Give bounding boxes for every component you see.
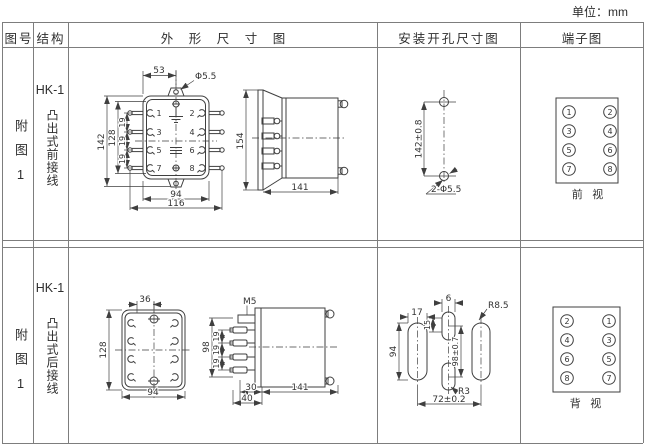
row1-model: HK-1 [32, 83, 68, 97]
table-border-top [2, 22, 643, 23]
holes-label: 2-Φ5.5 [431, 185, 461, 195]
row1-view-caption: 前 视 [572, 187, 607, 201]
td1-terminal-1: 1 [566, 108, 571, 117]
relay-side-body [258, 90, 348, 190]
row2-wiring: 凸出式后接线 [44, 317, 61, 395]
row1-mounting-drawing: 142±0.8 2-Φ5.5 [400, 85, 490, 205]
dim-128-r2: 128 [99, 341, 109, 358]
row2-mounting-drawing: 6 17 R8.5 15 94 98±0.7 R3 72±0.2 [385, 293, 515, 415]
row2-outline-side-view: M5 98 19 19 19 30 141 40 [205, 290, 340, 415]
td1-terminal-6: 6 [607, 146, 612, 155]
dim-154: 154 [236, 132, 246, 149]
terminal-no-8: 8 [189, 164, 194, 173]
relay2-side-body [230, 308, 334, 387]
header-terminal: 端子图 [562, 28, 603, 47]
dim-116: 116 [167, 199, 184, 209]
dim-128: 128 [108, 129, 118, 146]
table-col-line-2 [68, 22, 69, 443]
row2-side-dimensions: M5 98 19 19 19 30 141 40 [202, 297, 338, 405]
td1-terminal-5: 5 [566, 146, 571, 155]
dim-19b-r2: 19 [212, 345, 221, 355]
dim-6: 6 [446, 294, 452, 304]
row2-view-caption: 背 视 [570, 396, 605, 410]
dim-36: 36 [139, 295, 151, 305]
dim-98: 98 [202, 341, 212, 353]
row2-mounting-slots [408, 312, 490, 390]
table-border-left [2, 22, 3, 443]
td2-terminal-6: 6 [564, 355, 569, 364]
td2-terminal-7: 7 [606, 374, 611, 383]
header-outline: 外 形 尺 寸 图 [161, 28, 291, 47]
row1-terminal-diagram: 1 2 3 4 5 6 7 8 前 视 [545, 92, 635, 204]
td2-terminal-8: 8 [564, 374, 569, 383]
dim-94-mnt: 94 [389, 346, 399, 358]
row1-figure-no: 附图1 [11, 119, 30, 193]
dim-142-tol: 142±0.8 [415, 119, 425, 158]
dim-19a: 19 [118, 117, 127, 127]
dim-141: 141 [291, 183, 308, 193]
unit-label: 单位：mm [572, 3, 628, 20]
row1-front-dimensions: 53 Φ5.5 142 128 19 19 19 94 116 1 2 3 4 … [97, 66, 222, 210]
screw-m5-label: M5 [243, 297, 257, 307]
header-mounting: 安装开孔尺寸图 [398, 28, 500, 47]
dim-19b: 19 [118, 136, 127, 146]
dim-19c-r2: 19 [212, 358, 221, 368]
row2-figure-no: 附图1 [11, 328, 30, 402]
dim-30: 30 [245, 383, 257, 393]
terminal-no-5: 5 [156, 146, 161, 155]
datasheet-page: 单位：mm 图号 结构 外 形 尺 寸 图 安装开孔尺寸图 端子图 附图1 HK… [0, 0, 645, 447]
header-structure: 结构 [36, 28, 65, 47]
dim-40: 40 [241, 394, 253, 404]
row2-terminal-diagram: 2 1 4 3 6 5 8 7 背 视 [545, 300, 635, 415]
row1-wiring: 凸出式前接线 [44, 109, 61, 187]
table-border-row1-bottom [2, 240, 643, 241]
terminal-no-3: 3 [156, 128, 161, 137]
dim-142: 142 [97, 133, 107, 150]
row2-mounting-dimensions: 6 17 R8.5 15 94 98±0.7 R3 72±0.2 [389, 294, 509, 406]
table-border-right [643, 22, 644, 443]
row2-front-dimensions: 36 128 94 [99, 295, 192, 399]
table-col-line-4 [520, 22, 521, 443]
row1-outline-front-view: 53 Φ5.5 142 128 19 19 19 94 116 1 2 3 4 … [95, 62, 245, 214]
radius-r85-label: R8.5 [488, 301, 509, 311]
table-col-line-3 [377, 22, 378, 443]
row2-model: HK-1 [32, 281, 68, 295]
terminal-no-6: 6 [189, 146, 194, 155]
dim-17: 17 [411, 308, 422, 318]
terminal-no-2: 2 [189, 109, 194, 118]
td2-terminal-2: 2 [564, 317, 569, 326]
dim-19a-r2: 19 [212, 331, 221, 341]
td2-terminal-4: 4 [564, 336, 569, 345]
terminal-no-4: 4 [189, 128, 194, 137]
dim-15: 15 [423, 320, 432, 330]
dim-53: 53 [153, 66, 164, 76]
dim-94-r2: 94 [147, 388, 159, 398]
td1-terminal-4: 4 [607, 127, 612, 136]
td1-terminal-8: 8 [607, 165, 612, 174]
td1-terminal-3: 3 [566, 127, 571, 136]
dim-19c: 19 [118, 154, 127, 164]
table-border-row2-top [2, 247, 643, 248]
td1-terminal-7: 7 [566, 165, 571, 174]
td2-terminal-5: 5 [606, 355, 611, 364]
dim-hole-5-5: Φ5.5 [195, 72, 216, 82]
terminal-no-1: 1 [156, 109, 161, 118]
td2-terminal-3: 3 [606, 336, 611, 345]
header-figure-no: 图号 [4, 28, 33, 47]
table-border-header [2, 47, 643, 48]
terminal-no-7: 7 [156, 164, 161, 173]
row2-outline-front-view: 36 128 94 [95, 288, 210, 415]
row1-outline-side-view: 154 141 [238, 68, 350, 200]
row1-mounting-dimensions: 142±0.8 2-Φ5.5 [415, 90, 462, 195]
table-border-bottom [2, 443, 643, 444]
td2-terminal-1: 1 [606, 317, 611, 326]
dim-141-r2: 141 [291, 383, 308, 393]
td1-terminal-2: 2 [607, 108, 612, 117]
dim-98-tol: 98±0.7 [451, 337, 460, 367]
dim-72-tol: 72±0.2 [432, 395, 465, 405]
